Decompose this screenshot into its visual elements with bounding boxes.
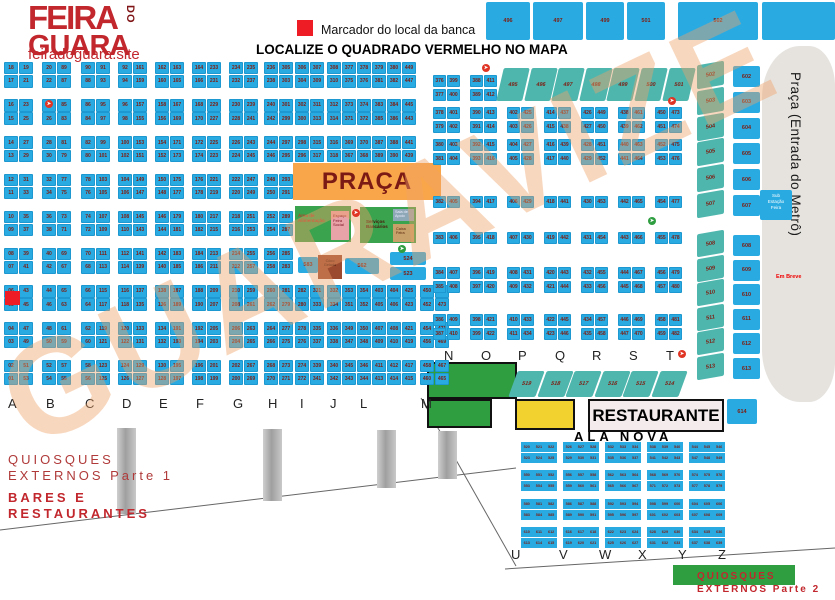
stall-229: 229 (207, 99, 221, 111)
stall-pair: 142183 (155, 248, 184, 260)
stall-89: 89 (57, 62, 71, 74)
stall-275: 275 (279, 336, 293, 348)
stall-291: 291 (279, 187, 293, 199)
stall-575: 575 (701, 470, 713, 480)
stall-602: 602 (659, 510, 671, 520)
stall-605: 605 (733, 143, 760, 164)
stall-451: 451 (655, 121, 668, 133)
stall-pair: 382405 (433, 196, 460, 208)
stall-pair: 460465 (420, 373, 449, 385)
stall-pair: 250291 (264, 187, 293, 199)
column-letter-D: D (122, 396, 131, 411)
stall-247: 247 (244, 174, 258, 186)
stall-pair: 348409 (357, 336, 386, 348)
column-letter-F: F (196, 396, 204, 411)
stall-586: 586 (563, 499, 575, 509)
stall-pair: 459482 (655, 328, 682, 340)
stall-10: 10 (4, 211, 18, 223)
stall-426: 426 (581, 107, 594, 119)
stall-450: 450 (595, 121, 608, 133)
stall-300: 300 (295, 112, 309, 124)
stall-331: 331 (310, 285, 324, 297)
stall-299: 299 (279, 112, 293, 124)
stall-121: 121 (96, 336, 110, 348)
stall-582: 582 (545, 499, 557, 509)
stall-181: 181 (170, 224, 184, 236)
stall-446: 446 (618, 314, 631, 326)
stall-02: 02 (4, 360, 18, 372)
stall-pair: 0937 (4, 224, 33, 236)
stall-431: 431 (521, 267, 534, 279)
stall-18: 18 (4, 62, 18, 74)
stall-277: 277 (279, 322, 293, 334)
stall-pair: 108145 (118, 211, 147, 223)
stall-621: 621 (587, 538, 599, 548)
stall-119: 119 (96, 322, 110, 334)
stall-536: 536 (617, 453, 629, 463)
stall-250: 250 (264, 187, 278, 199)
stall-583: 583 (521, 510, 533, 520)
stall-50: 50 (42, 336, 56, 348)
stall-418: 418 (484, 232, 497, 244)
stall-82: 82 (81, 136, 95, 148)
stall-171: 171 (170, 136, 184, 148)
stall-230: 230 (229, 99, 243, 111)
stall-190: 190 (192, 298, 206, 310)
stall-502: 502 (697, 61, 724, 90)
stall-93: 93 (96, 75, 110, 87)
stall-444: 444 (618, 267, 631, 279)
stall-308: 308 (327, 62, 341, 74)
stall-556: 556 (563, 470, 575, 480)
stall-269: 269 (244, 373, 258, 385)
stall-434: 434 (581, 314, 594, 326)
stall-59: 59 (57, 336, 71, 348)
stall-107: 107 (96, 211, 110, 223)
stall-pair: 130195 (155, 360, 184, 372)
stall-456: 456 (595, 281, 608, 293)
stall-92: 92 (118, 62, 132, 74)
stall-240: 240 (264, 99, 278, 111)
stall-54: 54 (42, 373, 56, 385)
stall-513: 513 (697, 353, 724, 381)
stall-85: 85 (57, 99, 71, 111)
stall-401: 401 (447, 107, 460, 119)
stall-pair: 445468 (618, 281, 645, 293)
ala-block: 592593594595596597 (605, 499, 642, 520)
column-letter-H: H (268, 396, 277, 411)
stall-134: 134 (155, 322, 169, 334)
stall-346: 346 (357, 360, 371, 372)
selected-stall-marker (5, 291, 20, 305)
stall-254: 254 (264, 224, 278, 236)
stall-220: 220 (229, 187, 243, 199)
stall-pair: 216253 (229, 224, 258, 236)
stall-313: 313 (310, 112, 324, 124)
stall-pair: 104149 (118, 174, 147, 186)
stall-pair: 136189 (155, 298, 184, 310)
stall-479: 479 (669, 267, 682, 279)
stall-57: 57 (57, 360, 71, 372)
stall-78: 78 (81, 174, 95, 186)
stall-pair: 252289 (264, 211, 293, 223)
stall-pair: 106147 (118, 187, 147, 199)
stall-410: 410 (507, 314, 520, 326)
stall-103: 103 (96, 174, 110, 186)
stall-146: 146 (155, 211, 169, 223)
stall-564: 564 (629, 470, 641, 480)
stall-pair: 64117 (81, 298, 110, 310)
ala-block: 628629630631632633 (647, 527, 684, 548)
stall-pair: 399422 (470, 328, 497, 340)
stall-217: 217 (207, 211, 221, 223)
stall-pair: 419442 (544, 232, 571, 244)
stall-pair: 260281 (264, 285, 293, 297)
stall-46: 46 (42, 298, 56, 310)
stall-pair: 420443 (544, 267, 571, 279)
stall-232: 232 (229, 75, 243, 87)
stall-246: 246 (264, 150, 278, 162)
stall-406: 406 (447, 232, 460, 244)
column-letter-G: G (233, 396, 243, 411)
stall-372: 372 (357, 112, 371, 124)
stall-418: 418 (544, 196, 557, 208)
stall-11: 11 (4, 187, 18, 199)
stall-64: 64 (81, 298, 95, 310)
stall-560: 560 (575, 481, 587, 491)
stall-379: 379 (433, 121, 446, 133)
stall-pair: 314371 (327, 112, 356, 124)
stall-pair: 274339 (295, 360, 324, 372)
stall-533: 533 (617, 442, 629, 452)
stall-597: 597 (629, 510, 641, 520)
stall-pair: 386443 (387, 112, 416, 124)
stall-462: 462 (632, 121, 645, 133)
stall-pair: 443466 (618, 232, 645, 244)
stall-417: 417 (402, 360, 416, 372)
stall-74: 74 (81, 211, 95, 223)
stall-449: 449 (402, 62, 416, 74)
stall-315: 315 (310, 136, 324, 148)
stall-245: 245 (244, 150, 258, 162)
ala-block: 616617618619620621 (563, 527, 600, 548)
stall-414: 414 (387, 373, 401, 385)
stall-534: 534 (629, 442, 641, 452)
site-link[interactable]: feiradoguara.site (28, 46, 140, 63)
stall-635: 635 (701, 527, 713, 537)
stall-549: 549 (713, 453, 725, 463)
stall-609: 609 (713, 510, 725, 520)
stall-pair: 368389 (357, 150, 386, 162)
stall-438: 438 (558, 121, 571, 133)
stall-pair: 5257 (42, 360, 71, 372)
stall-90: 90 (81, 62, 95, 74)
stall-117: 117 (96, 298, 110, 310)
stall-77: 77 (57, 174, 71, 186)
stall-600: 600 (671, 499, 683, 509)
stall-410: 410 (387, 336, 401, 348)
stall-354: 354 (357, 285, 371, 297)
stall-pair: 384445 (387, 99, 416, 111)
stall-378: 378 (433, 107, 446, 119)
stall-604: 604 (689, 499, 701, 509)
ala-block: 550551552553554555 (521, 470, 558, 491)
stall-36: 36 (42, 211, 56, 223)
stall-pair: 9091 (81, 62, 110, 74)
stall-pair: 346411 (357, 360, 386, 372)
stall-109: 109 (96, 224, 110, 236)
stall-pair: 178219 (192, 187, 221, 199)
stall-461: 461 (632, 107, 645, 119)
stall-pair: 406429 (507, 196, 534, 208)
map-title: LOCALIZE O QUADRADO VERMELHO NO MAPA (256, 42, 568, 57)
stall-pair: 80101 (81, 150, 110, 162)
pillar (438, 431, 457, 479)
stall-pair: 228241 (229, 112, 258, 124)
stall-178: 178 (192, 187, 206, 199)
stall-528: 528 (587, 442, 599, 452)
stall-345: 345 (342, 360, 356, 372)
column-letter-O: O (481, 348, 491, 363)
stall-pair: 370387 (357, 136, 386, 148)
stall-393: 393 (470, 153, 483, 165)
stall-pair: 407430 (507, 232, 534, 244)
stall-202: 202 (229, 360, 243, 372)
stall-pair: 354403 (357, 285, 386, 297)
stall-pair: 310375 (327, 75, 356, 87)
stall-pair: 0251 (4, 360, 33, 372)
stall-123: 123 (96, 360, 110, 372)
stall-pair: 378401 (433, 107, 460, 119)
stall-551: 551 (533, 470, 545, 480)
stall-276: 276 (295, 336, 309, 348)
stall-414: 414 (544, 107, 557, 119)
stall-370: 370 (357, 136, 371, 148)
stall-428: 428 (521, 153, 534, 165)
stall-pair: 74107 (81, 211, 110, 223)
stall-228: 228 (229, 112, 243, 124)
stall-88: 88 (81, 75, 95, 87)
stall-pair: 176221 (192, 174, 221, 186)
stall-404: 404 (447, 153, 460, 165)
stall-58: 58 (81, 360, 95, 372)
stall-pair: 452475 (655, 139, 682, 151)
stall-100: 100 (118, 136, 132, 148)
stall-388: 388 (470, 75, 483, 87)
stall-206: 206 (229, 322, 243, 334)
stall-226: 226 (229, 136, 243, 148)
stall-477: 477 (669, 196, 682, 208)
ala-block: 586587588589590591 (563, 499, 600, 520)
stall-35: 35 (19, 211, 33, 223)
red-circle-arrow-icon: ➤ (678, 350, 686, 358)
stall-335: 335 (310, 322, 324, 334)
stall-447: 447 (402, 75, 416, 87)
stall-429: 429 (521, 196, 534, 208)
green-circle-arrow-icon: ➤ (648, 217, 656, 225)
ala-block: 532533534535536537 (605, 442, 642, 463)
stall-pair: 376399 (433, 75, 460, 87)
stall-572: 572 (659, 481, 671, 491)
stall-pair: 387410 (433, 328, 460, 340)
stall-614: 614 (533, 538, 545, 548)
stall-580: 580 (521, 499, 533, 509)
column-letter-M: M (421, 396, 432, 411)
stall-423: 423 (544, 328, 557, 340)
stall-99: 99 (96, 136, 110, 148)
stall-pair: 390439 (387, 150, 416, 162)
stall-pair: 376381 (357, 75, 386, 87)
stall-108: 108 (118, 211, 132, 223)
stall-196: 196 (192, 360, 206, 372)
stall-385: 385 (372, 112, 386, 124)
stall-538: 538 (647, 442, 659, 452)
stall-161: 161 (133, 62, 147, 74)
stall-305: 305 (279, 62, 293, 74)
stall-585: 585 (545, 510, 557, 520)
column-letter-W: W (599, 547, 611, 562)
stall-405: 405 (447, 196, 460, 208)
stall-pair: 414437 (544, 107, 571, 119)
stall-pair: 208261 (229, 298, 258, 310)
praca-area: PRAÇA (293, 163, 441, 200)
stall-407: 407 (372, 322, 386, 334)
stall-632: 632 (659, 538, 671, 548)
stall-550: 550 (521, 470, 533, 480)
stall-458: 458 (420, 360, 434, 372)
stall-136: 136 (155, 298, 169, 310)
stall-pair: 186211 (192, 261, 221, 273)
stall-559: 559 (563, 481, 575, 491)
stall-pair: 378379 (357, 62, 386, 74)
stall-449: 449 (595, 107, 608, 119)
stall-pair: 230239 (229, 99, 258, 111)
stall-387: 387 (372, 136, 386, 148)
stall-153: 153 (133, 136, 147, 148)
stall-142: 142 (155, 248, 169, 260)
stall-pair: 132193 (155, 336, 184, 348)
stall-524: 524 (533, 453, 545, 463)
column-letter-L: L (360, 396, 367, 411)
stall-283: 283 (279, 261, 293, 273)
stall-172: 172 (192, 136, 206, 148)
stall-244: 244 (264, 136, 278, 148)
stall-267: 267 (244, 360, 258, 372)
stall-205: 205 (207, 322, 221, 334)
stall-49: 49 (19, 336, 33, 348)
stall-440: 440 (558, 153, 571, 165)
stall-578: 578 (701, 481, 713, 491)
stall-pair: 0153 (4, 373, 33, 385)
stall-447: 447 (618, 328, 631, 340)
stall-pair: 1721 (4, 75, 33, 87)
stall-pair: 204265 (229, 336, 258, 348)
stall-76: 76 (81, 187, 95, 199)
stall-478: 478 (669, 232, 682, 244)
stall-317: 317 (310, 150, 324, 162)
stall-29: 29 (19, 150, 33, 162)
stall-263: 263 (244, 322, 258, 334)
stall-pair: 296317 (295, 150, 324, 162)
stall-225: 225 (207, 136, 221, 148)
stall-590: 590 (575, 510, 587, 520)
stall-239: 239 (244, 99, 258, 111)
stall-387: 387 (433, 328, 446, 340)
column-letter-R: R (592, 348, 601, 363)
stall-347: 347 (342, 336, 356, 348)
column-letter-I: I (300, 396, 304, 411)
stall-pair: 164233 (192, 62, 221, 74)
stall-540: 540 (671, 442, 683, 452)
stall-408: 408 (507, 267, 520, 279)
stall-pair: 112141 (118, 248, 147, 260)
stall-252: 252 (264, 211, 278, 223)
stall-pair: 190207 (192, 298, 221, 310)
building-box (762, 2, 835, 40)
stall-132: 132 (155, 336, 169, 348)
stall-458: 458 (655, 314, 668, 326)
stall-pair: 3475 (42, 187, 71, 199)
stall-400: 400 (447, 89, 460, 101)
stall-186: 186 (192, 261, 206, 273)
stall-53: 53 (19, 373, 33, 385)
stall-482: 482 (669, 328, 682, 340)
stall-31: 31 (19, 174, 33, 186)
stall-523: 523 (390, 267, 426, 280)
stall-27: 27 (19, 136, 33, 148)
stall-pair: 334351 (327, 298, 356, 310)
stall-197: 197 (170, 373, 184, 385)
stall-pair: 342343 (327, 373, 356, 385)
stall-pair: 350407 (357, 322, 386, 334)
stall-415: 415 (484, 139, 497, 151)
stall-pair: 100153 (118, 136, 147, 148)
stall-525: 525 (545, 453, 557, 463)
ala-block: 568569570571572573 (647, 470, 684, 491)
stall-pair: 3673 (42, 211, 71, 223)
stall-148: 148 (155, 187, 169, 199)
stall-413: 413 (372, 373, 386, 385)
stall-503: 503 (697, 86, 724, 115)
red-circle-arrow-icon: ➤ (45, 100, 53, 108)
stall-411: 411 (507, 328, 520, 340)
stall-238: 238 (264, 75, 278, 87)
feira-map: FEIRA GUARA DO feiradoguara.site Marcado… (0, 0, 835, 600)
stall-pair: 383406 (433, 232, 460, 244)
stall-180: 180 (192, 211, 206, 223)
stall-pair: 118135 (118, 298, 147, 310)
stall-450: 450 (655, 107, 668, 119)
stall-270: 270 (264, 373, 278, 385)
stall-41: 41 (19, 261, 33, 273)
green-right-label: Serviços Bancários (366, 219, 388, 229)
stall-616: 616 (563, 527, 575, 537)
stall-pair: 242299 (264, 112, 293, 124)
stall-pair: 423446 (544, 328, 571, 340)
stall-pair: 152173 (155, 150, 184, 162)
stall-562: 562 (605, 470, 617, 480)
stall-pair: 403426 (507, 121, 534, 133)
stall-pair: 172225 (192, 136, 221, 148)
stall-236: 236 (264, 62, 278, 74)
stall-pair: 434457 (581, 314, 608, 326)
stall-pair: 450473 (655, 107, 682, 119)
stall-20: 20 (42, 62, 56, 74)
stall-567: 567 (629, 481, 641, 491)
stall-pair: 427450 (581, 121, 608, 133)
stall-416: 416 (544, 139, 557, 151)
stall-111: 111 (96, 248, 110, 260)
